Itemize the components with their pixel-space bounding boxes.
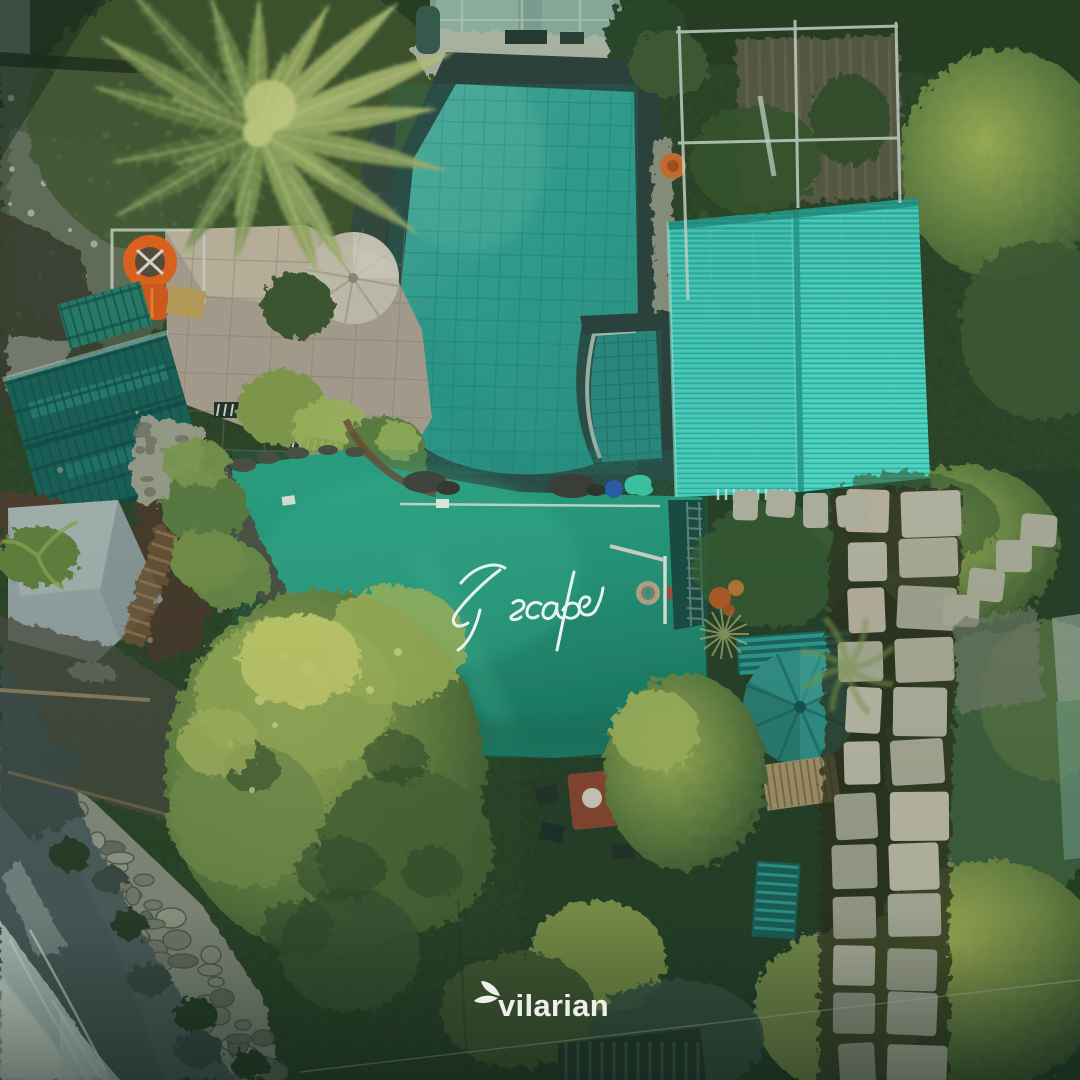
svg-text:vilarian: vilarian (498, 988, 609, 1023)
